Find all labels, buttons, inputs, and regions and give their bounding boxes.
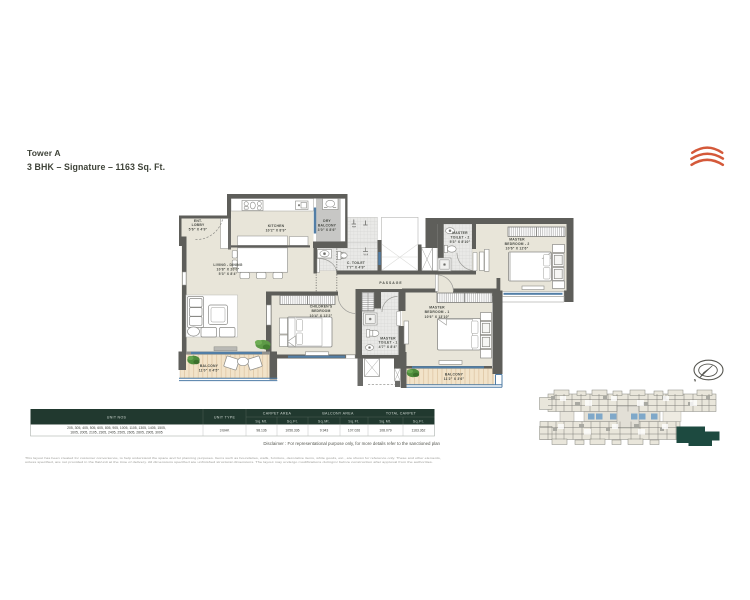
- svg-text:UNIT NOS: UNIT NOS: [107, 416, 127, 420]
- svg-text:Sq.Ft.: Sq.Ft.: [287, 419, 298, 423]
- svg-text:ENT.: ENT.: [194, 219, 202, 223]
- svg-text:MASTER: MASTER: [509, 237, 525, 241]
- svg-text:10'6" X 12'6": 10'6" X 12'6": [506, 247, 529, 251]
- svg-text:5'3" X 8'10": 5'3" X 8'10": [450, 240, 471, 244]
- svg-text:CARPET AREA: CARPET AREA: [263, 412, 292, 416]
- svg-text:PASSAGE: PASSAGE: [379, 281, 402, 285]
- svg-text:5'3" X 8'4": 5'3" X 8'4": [219, 272, 238, 276]
- svg-text:10'8" X 20'0": 10'8" X 20'0": [217, 268, 240, 272]
- svg-text:Sq.Mt.: Sq.Mt.: [255, 419, 267, 423]
- svg-text:1056.336: 1056.336: [285, 429, 299, 433]
- svg-text:C. TOILET: C. TOILET: [347, 261, 366, 265]
- svg-text:108.079: 108.079: [379, 429, 391, 433]
- svg-text:Sq.Mt.: Sq.Mt.: [318, 419, 330, 423]
- svg-text:11'2" X 3'6": 11'2" X 3'6": [444, 377, 465, 381]
- svg-text:MASTER: MASTER: [452, 231, 468, 235]
- svg-text:unless specified, are not prov: unless specified, are not provided in th…: [25, 460, 433, 464]
- svg-text:3 BHK – Signature – 1163 Sq. F: 3 BHK – Signature – 1163 Sq. Ft.: [27, 162, 165, 172]
- svg-text:KITCHEN: KITCHEN: [268, 224, 285, 228]
- svg-text:10'4" X 12'2": 10'4" X 12'2": [310, 314, 333, 318]
- svg-text:DRY: DRY: [323, 219, 331, 223]
- svg-text:UNIT TYPE: UNIT TYPE: [214, 416, 236, 420]
- svg-text:Sq.Ft.: Sq.Ft.: [413, 419, 424, 423]
- svg-text:BEDROOM - 2: BEDROOM - 2: [505, 242, 530, 246]
- svg-text:1163.362: 1163.362: [412, 429, 426, 433]
- svg-text:BALCONY: BALCONY: [318, 223, 337, 227]
- svg-text:Sq.Mt.: Sq.Mt.: [379, 419, 391, 423]
- svg-text:MASTER: MASTER: [429, 306, 445, 310]
- svg-text:10'6" X 13'10": 10'6" X 13'10": [425, 315, 450, 319]
- svg-text:BEDROOM: BEDROOM: [311, 309, 330, 313]
- svg-text:4'7" X 8'4": 4'7" X 8'4": [379, 345, 398, 349]
- svg-text:11'0" X 4'5": 11'0" X 4'5": [199, 369, 220, 373]
- svg-text:CHILDREN'S: CHILDREN'S: [310, 305, 333, 309]
- svg-text:Tower A: Tower A: [27, 148, 61, 158]
- svg-text:BEDROOM - 1: BEDROOM - 1: [425, 310, 450, 314]
- svg-text:107.026: 107.026: [348, 429, 360, 433]
- svg-text:3'0" X 8'6": 3'0" X 8'6": [318, 228, 337, 232]
- svg-text:Disclaimer : For representatio: Disclaimer : For representational purpos…: [263, 441, 440, 446]
- svg-text:5'6" X 4'9": 5'6" X 4'9": [189, 228, 208, 232]
- svg-text:TOILET - 2: TOILET - 2: [451, 236, 470, 240]
- svg-text:205, 305, 405, 505, 605, 805,: 205, 305, 405, 505, 605, 805, 905, 1005,…: [67, 426, 166, 430]
- svg-text:7'7" X 4'9": 7'7" X 4'9": [347, 265, 366, 269]
- svg-text:9.943: 9.943: [320, 429, 329, 433]
- svg-text:10'2" X 8'9": 10'2" X 8'9": [266, 229, 287, 233]
- svg-text:BALCONY: BALCONY: [200, 364, 219, 368]
- svg-text:BALCONY: BALCONY: [445, 373, 464, 377]
- svg-text:TOTAL CARPET: TOTAL CARPET: [386, 412, 417, 416]
- svg-text:3 BHK: 3 BHK: [220, 429, 231, 433]
- svg-text:LIVING - DINING: LIVING - DINING: [213, 263, 242, 267]
- svg-text:LOBBY: LOBBY: [192, 223, 205, 227]
- svg-text:1605, 2005, 2105, 2305, 2405,: 1605, 2005, 2105, 2305, 2405, 2505, 2605…: [70, 430, 162, 434]
- svg-text:98.136: 98.136: [256, 429, 266, 433]
- svg-text:Sq.Ft.: Sq.Ft.: [348, 419, 359, 423]
- svg-text:This layout has been created f: This layout has been created for custome…: [25, 456, 441, 460]
- svg-text:BALCONY AREA: BALCONY AREA: [322, 412, 354, 416]
